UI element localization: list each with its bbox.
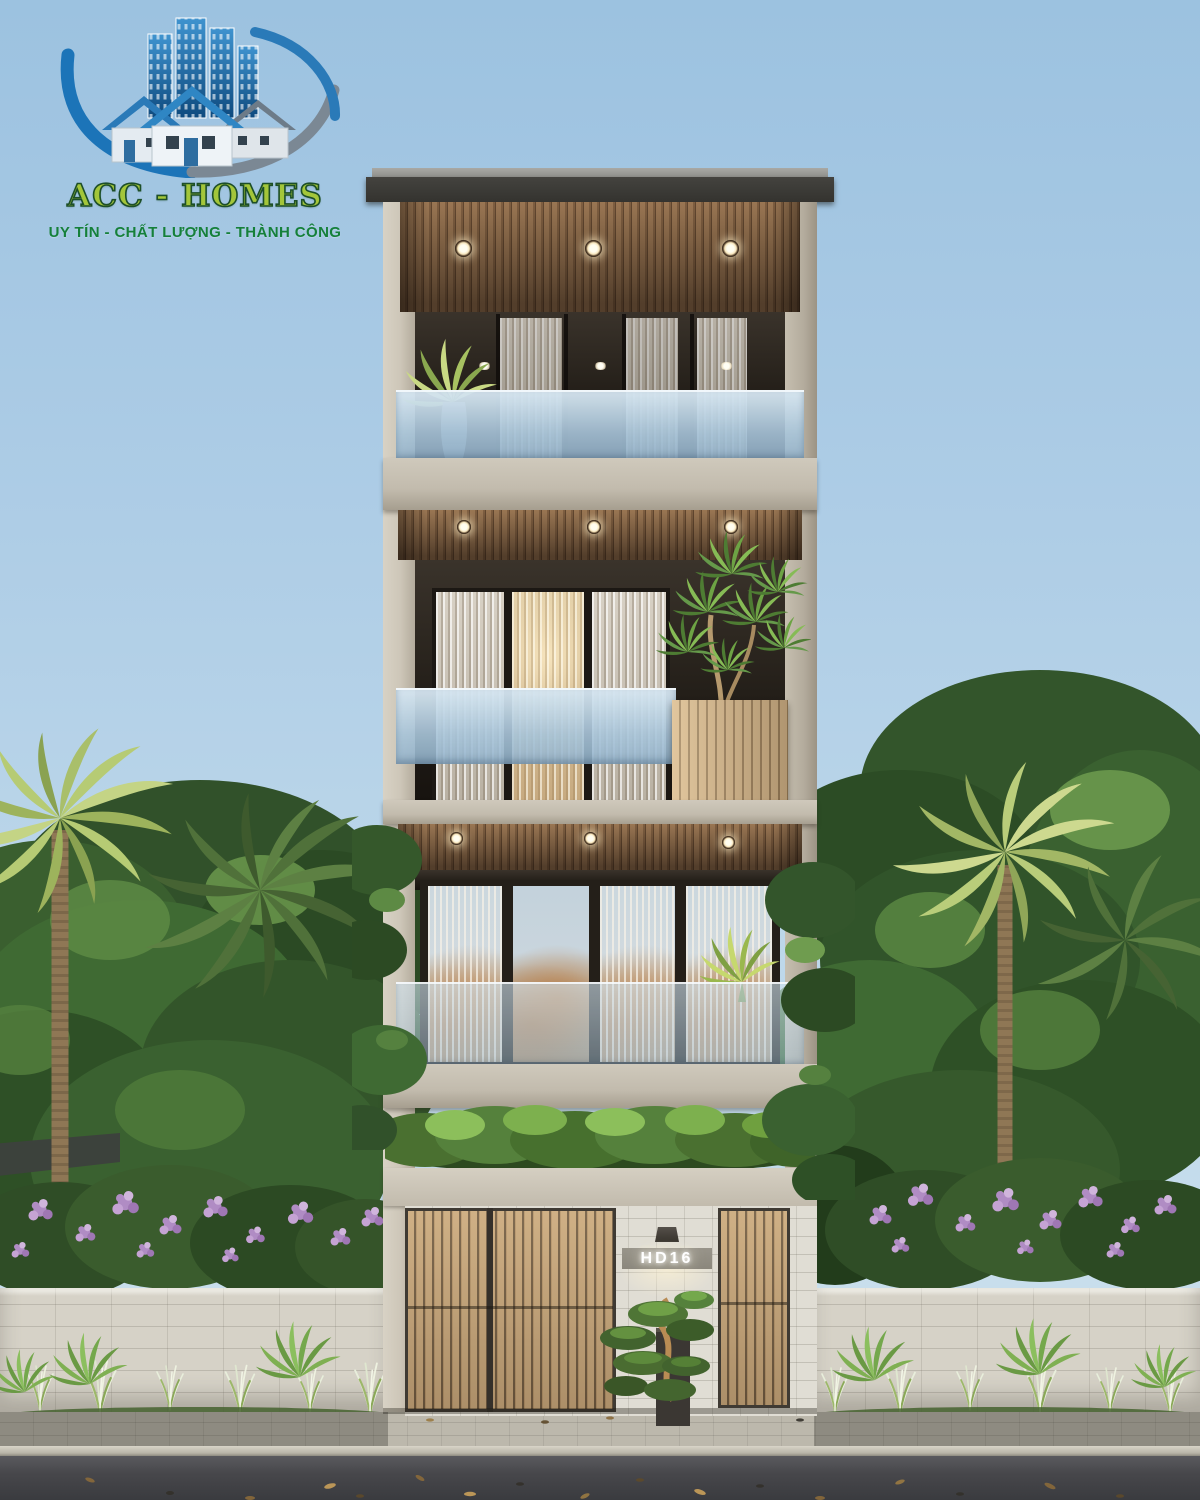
f4-wood-ceiling <box>400 202 800 312</box>
ceiling-downlight <box>450 832 463 845</box>
bonsai-tree <box>598 1278 733 1430</box>
ceiling-downlight <box>584 832 597 845</box>
acc-homes-logo: ACC - HOMES UY TÍN - CHẤT LƯỢNG - THÀNH … <box>28 10 362 260</box>
front-plants-left <box>0 1292 395 1422</box>
fern <box>995 1318 1083 1382</box>
wall-light <box>720 362 733 370</box>
flower-shrubs-left <box>0 1155 395 1300</box>
f2-wood-soffit <box>398 824 802 870</box>
ceiling-downlight <box>457 520 471 534</box>
fern <box>48 1333 129 1392</box>
gate-rail <box>408 1306 613 1309</box>
f2-glass-railing <box>396 982 804 1066</box>
ceiling-downlight <box>455 240 472 257</box>
logo-icon <box>40 10 350 178</box>
garage-gate <box>405 1208 616 1412</box>
foreground-foliage-left <box>352 800 447 1150</box>
house-number: HD16 <box>641 1250 694 1268</box>
floor-slab-4 <box>383 458 817 510</box>
brand-text: ACC - HOMES <box>28 178 362 214</box>
ceiling-downlight <box>722 240 739 257</box>
planter-tree <box>636 530 811 722</box>
flower-shrubs-right <box>805 1145 1200 1300</box>
house-number-plate: HD16 <box>622 1248 712 1269</box>
ceiling-downlight <box>587 520 601 534</box>
fern <box>255 1321 343 1385</box>
fern <box>1130 1344 1197 1393</box>
f3-glass-railing <box>396 688 676 764</box>
tagline-text: UY TÍN - CHẤT LƯỢNG - THÀNH CÔNG <box>28 224 362 241</box>
ceiling-downlight <box>585 240 602 257</box>
houses-icon <box>102 86 296 166</box>
front-plants-right <box>805 1292 1200 1422</box>
wall-light <box>594 362 607 370</box>
architectural-render-scene: HD16 <box>0 0 1200 1500</box>
gate-divider <box>487 1208 493 1412</box>
f4-glass-railing <box>396 390 804 460</box>
roof-slab <box>366 177 834 202</box>
floor-slab-3 <box>383 800 817 824</box>
ceiling-downlight <box>722 836 735 849</box>
foreground-foliage-right <box>745 840 855 1200</box>
fern <box>0 1349 58 1398</box>
